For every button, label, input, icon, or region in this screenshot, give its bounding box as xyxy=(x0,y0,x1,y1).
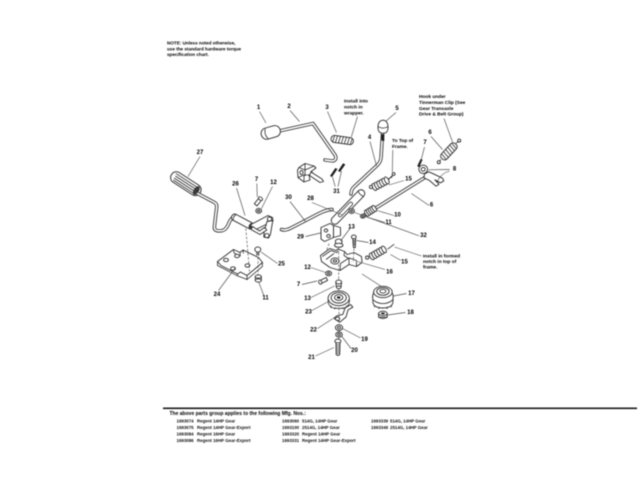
svg-text:19: 19 xyxy=(361,337,368,343)
svg-text:specification chart.: specification chart. xyxy=(167,52,209,57)
svg-text:1693075: 1693075 xyxy=(177,425,195,430)
svg-text:1693339: 1693339 xyxy=(371,419,389,424)
svg-text:Install into: Install into xyxy=(344,99,368,105)
svg-text:Tinnerman Clip (See: Tinnerman Clip (See xyxy=(419,100,466,106)
svg-text:11: 11 xyxy=(385,220,392,226)
svg-text:30: 30 xyxy=(285,195,292,201)
svg-text:29: 29 xyxy=(297,235,304,241)
svg-text:1693100: 1693100 xyxy=(282,425,300,430)
svg-text:13: 13 xyxy=(348,225,355,231)
svg-text:21: 21 xyxy=(308,355,315,361)
svg-text:31: 31 xyxy=(333,189,340,195)
svg-text:Regent 14HP Gear: Regent 14HP Gear xyxy=(197,419,236,424)
svg-text:16: 16 xyxy=(386,270,393,276)
svg-text:12: 12 xyxy=(304,265,311,271)
svg-text:Regent 14HP Gear-Export: Regent 14HP Gear-Export xyxy=(197,425,251,430)
svg-text:514G, 14HP Gear: 514G, 14HP Gear xyxy=(390,419,426,424)
svg-text:10: 10 xyxy=(394,213,401,219)
svg-text:1693349: 1693349 xyxy=(371,425,389,430)
svg-text:25: 25 xyxy=(278,262,285,268)
svg-text:11: 11 xyxy=(262,296,269,302)
svg-text:2514G, 14HP Gear: 2514G, 14HP Gear xyxy=(390,425,428,430)
svg-text:Regent 16HP Gear-Export: Regent 16HP Gear-Export xyxy=(197,438,251,443)
svg-text:Frame.: Frame. xyxy=(392,144,408,150)
svg-text:24: 24 xyxy=(214,292,221,298)
svg-text:20: 20 xyxy=(351,348,358,354)
svg-text:notch in top of: notch in top of xyxy=(423,259,457,265)
svg-text:514G, 14HP Gear: 514G, 14HP Gear xyxy=(302,419,338,424)
svg-text:23: 23 xyxy=(305,310,312,316)
svg-text:15: 15 xyxy=(401,260,408,266)
svg-text:13: 13 xyxy=(304,296,311,302)
svg-text:32: 32 xyxy=(420,233,427,239)
svg-text:27: 27 xyxy=(197,150,204,156)
svg-text:Regent 16HP Gear: Regent 16HP Gear xyxy=(197,432,236,437)
svg-text:NOTE: Unless noted otherwise,: NOTE: Unless noted otherwise, xyxy=(167,41,235,46)
svg-text:1693320: 1693320 xyxy=(282,432,300,437)
svg-text:2514G, 14HP Gear: 2514G, 14HP Gear xyxy=(302,425,340,430)
svg-text:Gear Transaxle: Gear Transaxle xyxy=(419,106,454,112)
svg-text:To Top of: To Top of xyxy=(392,138,414,144)
svg-text:18: 18 xyxy=(407,310,414,316)
svg-text:use the standard hardware torq: use the standard hardware torque xyxy=(167,46,241,51)
svg-text:22: 22 xyxy=(310,328,317,334)
svg-text:Hook under: Hook under xyxy=(419,94,446,100)
svg-text:28: 28 xyxy=(307,196,314,202)
svg-text:notch in: notch in xyxy=(344,105,363,111)
svg-text:1693086: 1693086 xyxy=(177,438,195,443)
svg-text:15: 15 xyxy=(405,176,412,182)
svg-text:1693060: 1693060 xyxy=(282,419,300,424)
svg-text:frame.: frame. xyxy=(423,265,437,271)
svg-text:1693331: 1693331 xyxy=(282,438,300,443)
svg-text:17: 17 xyxy=(408,291,415,297)
svg-text:Regent 14HP Gear-Export: Regent 14HP Gear-Export xyxy=(302,438,356,443)
svg-text:1693084: 1693084 xyxy=(177,432,195,437)
svg-text:Install in formed: Install in formed xyxy=(423,253,460,259)
svg-text:wrapper.: wrapper. xyxy=(343,111,364,117)
svg-text:26: 26 xyxy=(232,182,239,188)
svg-text:1693074: 1693074 xyxy=(177,419,195,424)
svg-text:Regent 14HP Gear: Regent 14HP Gear xyxy=(302,432,341,437)
svg-text:14: 14 xyxy=(369,240,376,246)
svg-text:The above parts group applies: The above parts group applies to the fol… xyxy=(170,411,307,417)
svg-text:12: 12 xyxy=(270,180,277,186)
svg-text:Drive & Belt Group): Drive & Belt Group) xyxy=(419,112,464,118)
